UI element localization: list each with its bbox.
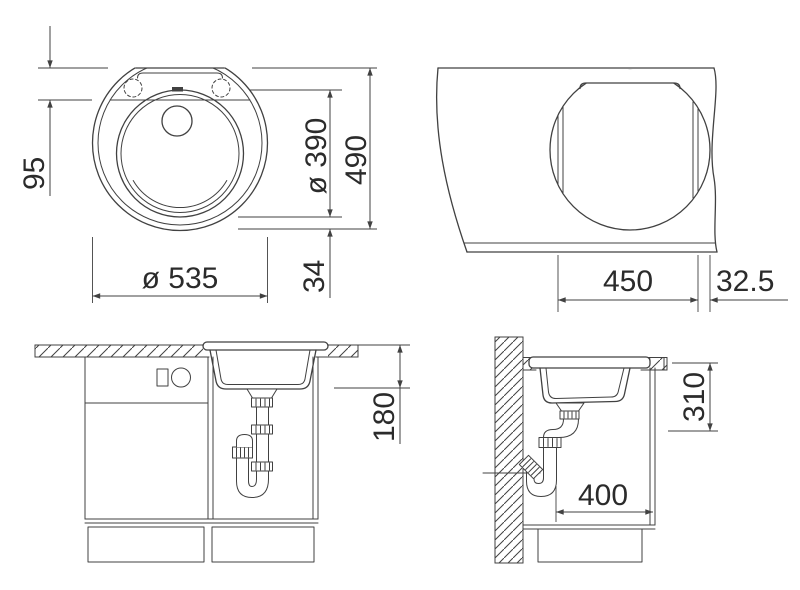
basin-outer-front xyxy=(210,350,316,389)
dim-label-400: 400 xyxy=(578,479,628,512)
dim-label-180: 180 xyxy=(368,392,401,442)
worktop-left-break-edge xyxy=(437,68,467,252)
dimension-overall-depth: 490 xyxy=(340,68,373,229)
dimension-outlet-height: 310 xyxy=(678,363,711,431)
overflow-slot xyxy=(172,87,183,92)
control-knob xyxy=(172,368,191,387)
drawing-canvas: 95 ø 390 490 34 ø 535 xyxy=(0,0,800,590)
front-view: 180 xyxy=(35,342,410,562)
sink-outer-rim xyxy=(93,56,268,231)
tap-hole-left xyxy=(124,79,142,97)
top-view: 95 ø 390 490 34 ø 535 xyxy=(18,26,377,303)
dim-label-390: ø 390 xyxy=(300,118,333,195)
worktop-hatch-left xyxy=(35,345,203,357)
dim-label-535: ø 535 xyxy=(142,262,219,295)
sink-rim-side xyxy=(529,357,650,368)
basin-inner-side xyxy=(546,368,624,399)
dimension-95: 95 xyxy=(18,26,51,196)
dimension-bowl-diameter: ø 390 xyxy=(300,90,333,217)
bowl-outer-circle xyxy=(117,90,244,217)
dimension-edge-distance: 32.5 xyxy=(710,265,788,300)
dimension-cutout-width: 450 xyxy=(558,265,698,300)
control-rect xyxy=(157,369,168,386)
appliance-controls xyxy=(157,368,191,387)
bowl-floor-arc xyxy=(133,181,227,208)
drain-trap-front xyxy=(233,389,278,498)
rim-flat-inner-edge xyxy=(138,73,223,78)
cutout-side-flats xyxy=(558,102,698,198)
bowl-inner-circle xyxy=(121,95,239,213)
drain-trap-side xyxy=(519,403,584,497)
side-view: 310 400 xyxy=(483,337,718,563)
dimension-overall-diameter: ø 535 xyxy=(93,262,268,296)
plinth-right xyxy=(212,527,314,562)
worktop-hatch-right xyxy=(328,345,358,357)
worktop-right-break-edge xyxy=(712,68,717,252)
drain-hole xyxy=(162,106,192,136)
dim-label-34: 34 xyxy=(298,260,331,293)
cutout-flat-back xyxy=(580,83,680,89)
dimension-cabinet-depth: 400 xyxy=(556,479,653,512)
dim-label-450: 450 xyxy=(603,265,653,298)
dimension-front-rim: 34 xyxy=(298,229,331,298)
technical-drawing-page: 95 ø 390 490 34 ø 535 xyxy=(0,0,800,590)
dim-label-95: 95 xyxy=(18,157,51,190)
basin-inner-front xyxy=(216,350,310,385)
cabinet-outline xyxy=(85,357,318,562)
sink-rim-front xyxy=(203,342,328,350)
dim-label-310: 310 xyxy=(678,372,711,422)
dimension-bowl-depth: 180 xyxy=(368,345,401,444)
plinth-left xyxy=(88,527,204,562)
cutout-view: 450 32.5 xyxy=(437,68,788,312)
sink-inner-rim xyxy=(98,61,262,225)
tap-hole-right xyxy=(212,79,230,97)
wall-hatch xyxy=(495,337,523,563)
cutout-circle xyxy=(550,70,710,230)
plinth-side xyxy=(538,529,642,562)
dim-label-32-5: 32.5 xyxy=(716,265,774,298)
dim-label-490: 490 xyxy=(340,135,373,185)
